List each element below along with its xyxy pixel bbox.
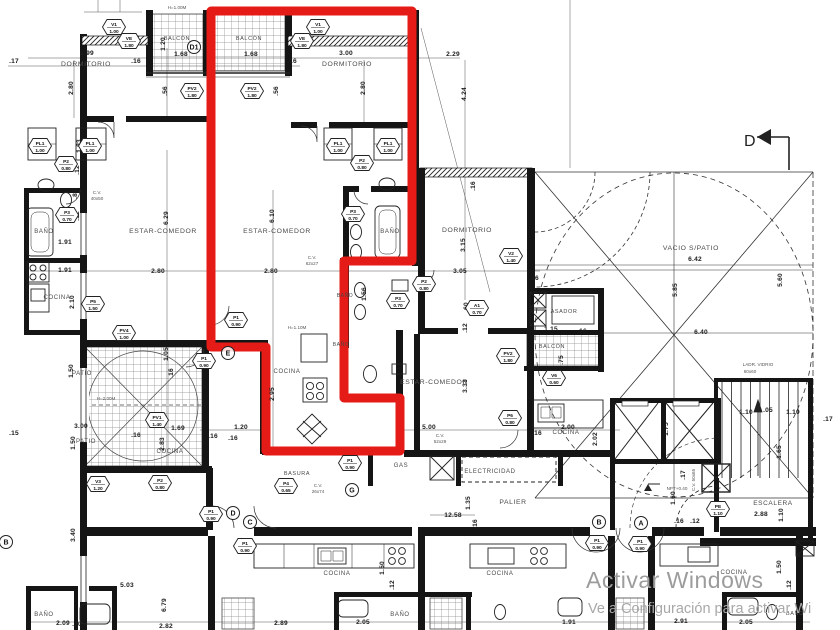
dimension-label: 2.80 <box>264 268 278 275</box>
dimension-label: 6.40 <box>694 329 708 336</box>
axis-marker: C <box>244 516 257 529</box>
carpentry-tag: P60.80 <box>499 411 522 426</box>
dimension-label: 1.35 <box>465 496 472 510</box>
tag-value: 1.40 <box>506 258 516 264</box>
tag-value: 0.70 <box>348 216 358 222</box>
axis-marker-letter: C <box>247 520 252 527</box>
carpentry-tag: P10.90 <box>629 537 652 552</box>
dimension-label: .12 <box>462 323 469 333</box>
dimension-label: 1.68 <box>174 51 188 58</box>
dimension-label: 2.99 <box>80 50 94 57</box>
tag-value: 1.00 <box>109 29 119 35</box>
sink <box>688 547 710 562</box>
dimension-label: 5.60 <box>777 273 784 287</box>
dimension-label: 6.29 <box>163 211 170 225</box>
tag-value: 1.80 <box>187 93 197 99</box>
dimension-label: 6.10 <box>269 209 276 223</box>
room-label: GAS <box>394 463 408 469</box>
carpentry-tag: P20.80 <box>413 277 436 292</box>
carpentry-tag: P20.80 <box>351 156 374 171</box>
sink <box>538 404 564 422</box>
dimension-label: 2.88 <box>754 511 768 518</box>
elevator-door <box>622 401 648 406</box>
dimension-label: .56 <box>273 86 280 96</box>
room-label: BAÑO <box>34 228 53 235</box>
dimension-label: .17 <box>9 58 19 65</box>
elevators <box>615 401 730 492</box>
carpentry-tag: PV21.80 <box>181 84 204 99</box>
tag-value: 0.60 <box>549 380 559 386</box>
dimension-label: .16 <box>472 519 479 529</box>
dimension-label: 2.95 <box>269 387 276 401</box>
dimension-label: .75 <box>558 355 565 365</box>
tag-value: 0.70 <box>472 310 482 316</box>
dimension-label: 1.10 <box>778 508 785 522</box>
dimension-label: 2.80 <box>68 81 75 95</box>
room-label: VACIO S/PATIO <box>663 245 719 252</box>
dimension-label: .16 <box>287 58 297 65</box>
tag-value: 1.00 <box>313 29 323 35</box>
axis-marker: B <box>0 536 13 549</box>
room-label: ESTAR-COMEDOR <box>243 228 311 235</box>
tag-value: 1.80 <box>124 43 134 49</box>
bidet <box>355 305 366 320</box>
axis-marker: B <box>593 516 606 529</box>
dimension-label: .16 <box>529 275 539 282</box>
annotation-note: C.V. <box>436 433 445 438</box>
tag-value: 1.80 <box>247 93 257 99</box>
dimension-label: .56 <box>162 86 169 96</box>
room-label: BAÑO <box>390 611 409 618</box>
dimension-label: 1.60 <box>670 491 677 505</box>
sink <box>488 548 514 564</box>
axis-marker-letter: B <box>596 520 601 527</box>
room-label: COCINA <box>274 369 301 375</box>
carpentry-tag: PV11.40 <box>146 413 169 428</box>
carpentry-tag: PV41.00 <box>113 326 136 341</box>
carpentry-tag: P51.50 <box>82 297 105 312</box>
tag-code: PV2 <box>503 351 512 357</box>
tag-value: 0.90 <box>635 546 645 552</box>
elevator-door <box>673 401 699 406</box>
tag-value: 0.90 <box>199 363 209 369</box>
dimension-label: 1.69 <box>171 425 185 432</box>
tag-value: 0.90 <box>231 322 241 328</box>
tag-code: V1 <box>315 22 321 28</box>
tag-code: P2 <box>157 478 163 484</box>
dimension-label: 4.24 <box>461 87 468 101</box>
carpentry-tag: VE1.80 <box>291 34 314 49</box>
dimension-label: 2.89 <box>274 620 288 627</box>
carpentry-tag: PL11.00 <box>79 139 102 154</box>
dimension-label: .16 <box>577 328 587 335</box>
carpentry-tags-layer: V11.00VE1.80V11.00VE1.80PV21.80PV21.80PL… <box>29 20 730 554</box>
carpentry-tag: P10.90 <box>193 354 216 369</box>
dimension-label: 5.85 <box>672 283 679 297</box>
carpentry-tag: A10.70 <box>466 301 489 316</box>
dimension-label: .16 <box>168 368 175 378</box>
dimension-label: 5.03 <box>120 582 134 589</box>
dimension-label: 1.05 <box>163 347 170 361</box>
shaft-grid <box>430 598 462 629</box>
annotation-note: 26x74 <box>312 489 325 494</box>
tag-code: P1 <box>242 541 248 547</box>
dimension-label: 3.00 <box>74 423 88 430</box>
room-label: ELECTRICIDAD <box>464 469 515 475</box>
tag-code: P3 <box>395 296 401 302</box>
toilet <box>364 366 377 383</box>
tag-code: VE <box>299 36 306 42</box>
tag-code: P6 <box>507 413 513 419</box>
tag-value: 0.90 <box>592 545 602 551</box>
section-arrow-icon <box>757 129 771 145</box>
room-label: DORMITORIO <box>61 61 111 68</box>
tag-code: V6 <box>551 373 557 379</box>
room-label: BAÑO <box>337 292 354 299</box>
annotation-note: LADR. VIDRIO <box>743 362 774 367</box>
dimension-label: 1.91 <box>58 267 72 274</box>
tag-code: P5 <box>90 299 96 305</box>
tag-code: P1 <box>201 356 207 362</box>
carpentry-tag: P10.90 <box>586 536 609 551</box>
windows-activation-watermark: Activar Windows <box>586 567 763 594</box>
dimension-label: .05 <box>763 407 773 414</box>
tag-value: 1.20 <box>93 486 103 492</box>
tag-code: P2 <box>63 159 69 165</box>
tag-code: V3 <box>95 479 101 485</box>
tag-code: P1 <box>233 315 239 321</box>
room-label: PATIO <box>76 439 96 445</box>
carpentry-tag: V21.40 <box>500 249 523 264</box>
dimension-label: 2.80 <box>151 268 165 275</box>
tag-code: P3 <box>64 210 70 216</box>
room-label: ESCALERA <box>753 500 793 507</box>
axis-marker: A <box>635 517 648 530</box>
dimension-label: 1.10 <box>786 409 800 416</box>
dimension-label: .17 <box>823 416 833 423</box>
balcony-grid <box>214 14 285 71</box>
tag-value: 0.80 <box>61 166 71 172</box>
room-label: BASURA <box>284 471 310 477</box>
tag-code: PE <box>715 504 722 510</box>
axis-marker-letter: E <box>226 351 231 358</box>
tag-value: 0.90 <box>345 465 355 471</box>
annotation-note: 60x60 <box>744 369 757 374</box>
annotation-note: 40x50 <box>91 196 104 201</box>
elevator-shaft-x <box>666 403 713 459</box>
annotation-note: C.V. 50x65 <box>691 468 696 491</box>
bathtub <box>558 598 582 616</box>
dimension-label: .16 <box>674 518 684 525</box>
dimension-label: 2.05 <box>739 619 753 626</box>
dimension-label: 1.50 <box>379 561 386 575</box>
tag-code: PV2 <box>247 86 256 92</box>
tag-value: 0.80 <box>357 165 367 171</box>
tag-value: 0.70 <box>62 217 72 223</box>
tag-value: 1.00 <box>383 148 393 154</box>
room-label: PALIER <box>499 499 526 506</box>
windows-activation-hint: Ve a Configuración para activar Wi <box>588 601 840 617</box>
section-marker-label: D <box>744 133 756 150</box>
dimension-label: .15 <box>9 430 19 437</box>
dimension-label: .16 <box>131 432 141 439</box>
elevator-shaft-x <box>615 403 658 459</box>
dimension-label: 6.42 <box>688 256 702 263</box>
tag-value: 1.50 <box>88 306 98 312</box>
carpentry-tag: P10.90 <box>339 456 362 471</box>
tag-code: P1 <box>594 538 600 544</box>
carpentry-tag: P30.70 <box>387 294 410 309</box>
carpentry-tag: V11.00 <box>307 20 330 35</box>
axis-marker: G <box>346 484 359 497</box>
dimension-label: .16 <box>470 181 477 191</box>
sink <box>392 280 408 291</box>
annotation-note: C.V. <box>93 190 102 195</box>
carpentry-tag: PL11.00 <box>377 139 400 154</box>
tag-code: P1 <box>637 539 643 545</box>
dimension-label: 2.83 <box>159 437 166 451</box>
dimension-label: 1.56 <box>361 287 368 301</box>
tag-value: 0.80 <box>505 420 515 426</box>
window-openings <box>78 73 290 602</box>
axis-marker-letter: G <box>349 488 355 495</box>
room-label: BAÑO <box>333 341 350 348</box>
tag-code: P2 <box>359 158 365 164</box>
tag-code: A1 <box>474 303 480 309</box>
annotation-note: C.V. <box>314 483 323 488</box>
tag-code: P1 <box>347 458 353 464</box>
kitchen-diamond <box>297 414 327 444</box>
tag-value: 1.40 <box>152 422 162 428</box>
floor-plan-drawing: D DORMITORIOBALCÓNBALCÓNDORMITORIOBAÑOES… <box>0 0 840 630</box>
tag-code: P1 <box>208 509 214 515</box>
tag-code: P4 <box>283 481 289 487</box>
carpentry-tag: PL11.00 <box>29 139 52 154</box>
room-label: BAÑO <box>380 228 399 235</box>
tag-code: PL1 <box>86 141 95 147</box>
axis-marker-letter: B <box>3 540 8 547</box>
room-label: ASADOR <box>551 309 578 315</box>
dimension-label: .12 <box>786 580 793 590</box>
balcony-grid <box>527 334 603 366</box>
carpentry-tag: PV21.80 <box>241 84 264 99</box>
annotation-note: NPT+0.40 <box>667 486 688 491</box>
dimension-label: .12 <box>389 580 396 590</box>
dimension-label: 2.10 <box>69 295 76 309</box>
dimension-label: 2.82 <box>159 623 173 630</box>
carpentry-tag: PV21.80 <box>497 349 520 364</box>
carpentry-tag: V31.20 <box>87 477 110 492</box>
dimension-label: 1.15 <box>544 326 558 333</box>
bathtub <box>338 600 368 617</box>
tag-value: 0.80 <box>419 286 429 292</box>
hatched-floor-grids <box>85 14 644 629</box>
carpentry-tag: P10.90 <box>234 539 257 554</box>
floor-plan-svg: D DORMITORIOBALCÓNBALCÓNDORMITORIOBAÑOES… <box>0 0 840 630</box>
carpentry-tag: P30.70 <box>56 208 79 223</box>
axis-marker-letter: A <box>638 521 643 528</box>
section-marker-d: D <box>744 129 789 170</box>
tag-value: 1.80 <box>503 358 513 364</box>
tag-code: P2 <box>421 279 427 285</box>
dimension-label: .16 <box>208 433 218 440</box>
room-label: COCINA <box>324 571 351 577</box>
sink <box>318 548 346 564</box>
dimension-label: 2.09 <box>56 620 70 627</box>
dimension-label: 1.20 <box>234 424 248 431</box>
carpentry-tag: PE1.10 <box>707 502 730 517</box>
dimension-label: 2.91 <box>674 618 688 625</box>
tag-value: 0.65 <box>281 488 291 494</box>
room-label: ESTAR-COMEDOR <box>129 228 197 235</box>
tag-value: 0.70 <box>393 303 403 309</box>
dimension-label: 5.00 <box>422 424 436 431</box>
room-label: DORMITORIO <box>322 61 372 68</box>
axis-marker-letter: D1 <box>190 45 199 52</box>
tag-value: 1.00 <box>333 148 343 154</box>
dimension-label: .16 <box>131 58 141 65</box>
dimension-label: 3.05 <box>453 268 467 275</box>
dimension-label: .16 <box>228 435 238 442</box>
dimension-label: 3.15 <box>460 238 467 252</box>
toilet <box>495 605 506 620</box>
tag-code: PV4 <box>119 328 128 334</box>
dimension-label: 12.58 <box>444 512 462 519</box>
dimension-label: 1.10 <box>739 409 753 416</box>
annotation-note: H=2.00M <box>97 396 116 401</box>
tag-value: 0.90 <box>240 548 250 554</box>
axis-marker: E <box>222 347 235 360</box>
axis-marker: D <box>227 507 240 520</box>
dimension-label: 3.33 <box>462 379 469 393</box>
tag-value: 0.90 <box>206 516 216 522</box>
dimension-label: 3.40 <box>70 528 77 542</box>
tag-code: PV2 <box>187 86 196 92</box>
room-label: COCINA <box>44 295 71 301</box>
tag-code: V1 <box>111 22 117 28</box>
dimension-label: 1.75 <box>663 422 670 436</box>
tag-value: 0.80 <box>155 485 165 491</box>
dimension-label: 1.91 <box>58 239 72 246</box>
dimension-label: .12 <box>690 518 700 525</box>
carpentry-tag: VE1.80 <box>118 34 141 49</box>
tag-code: PL1 <box>334 141 343 147</box>
room-label: BALCÓN <box>164 35 190 42</box>
carpentry-tag: P10.90 <box>225 313 248 328</box>
dimension-label: 1.50 <box>68 364 75 378</box>
dimension-label: .80 <box>72 189 79 199</box>
tag-value: 1.00 <box>85 148 95 154</box>
dimension-label: .16 <box>532 430 542 437</box>
room-label: BALCÓN <box>539 343 565 350</box>
tag-code: PV1 <box>152 415 161 421</box>
dimension-label: 2.00 <box>561 424 575 431</box>
shaft-grid <box>222 598 254 629</box>
tag-code: P3 <box>350 209 356 215</box>
dimension-label: 2.80 <box>360 81 367 95</box>
dimension-label: 1.65 <box>776 445 783 459</box>
carpentry-tag: P20.80 <box>55 157 78 172</box>
tag-value: 1.10 <box>713 511 723 517</box>
dimension-label: .20 <box>72 621 82 628</box>
carpentry-tag: P10.90 <box>200 507 223 522</box>
tag-code: PL1 <box>384 141 393 147</box>
stairs-direction-arrow <box>754 400 762 412</box>
dimension-label: .17 <box>680 470 687 480</box>
dimension-label: 6.79 <box>161 598 168 612</box>
toilet <box>351 225 362 240</box>
tag-code: V2 <box>508 251 514 257</box>
dimension-label: 1.91 <box>562 619 576 626</box>
dimension-label: 1.68 <box>244 51 258 58</box>
tag-code: PL1 <box>36 141 45 147</box>
dimension-label: 2.05 <box>356 619 370 626</box>
carpentry-tag: P40.65 <box>275 479 298 494</box>
toilet <box>61 193 72 208</box>
carpentry-tag: P30.70 <box>342 207 365 222</box>
tag-value: 1.00 <box>119 335 129 341</box>
tag-value: 1.80 <box>297 43 307 49</box>
dimension-label: 1.50 <box>70 436 77 450</box>
annotation-note: 52x29 <box>434 439 447 444</box>
annotation-note: H=1.10M <box>288 325 307 330</box>
dimension-label: 2.29 <box>446 51 460 58</box>
axis-marker: D1 <box>188 41 201 54</box>
annotation-note: H=1.00M <box>168 5 187 10</box>
room-label: BAÑO <box>34 611 53 618</box>
dimension-label: 1.50 <box>776 560 783 574</box>
carpentry-tag: PL11.00 <box>327 139 350 154</box>
dimension-label: 3.00 <box>339 50 353 57</box>
tag-value: 1.00 <box>35 148 45 154</box>
carpentry-tag: P20.80 <box>149 476 172 491</box>
carpentry-tag: V11.00 <box>103 20 126 35</box>
room-label: DORMITORIO <box>442 227 492 234</box>
stove <box>303 378 327 402</box>
annotation-note: C.V. <box>308 255 317 260</box>
dimension-label: 1.20 <box>160 37 167 51</box>
room-label: COCINA <box>487 571 514 577</box>
tag-code: VE <box>126 36 133 42</box>
annotation-note: 62x27 <box>306 261 319 266</box>
axis-marker-letter: D <box>230 511 235 518</box>
carpentry-tag: V60.60 <box>543 371 566 386</box>
room-label: BALCÓN <box>236 35 262 42</box>
npt-level-symbol <box>644 484 660 491</box>
dimension-label: 2.02 <box>592 432 599 446</box>
room-label: ESTAR-COMEDOR <box>400 379 468 386</box>
